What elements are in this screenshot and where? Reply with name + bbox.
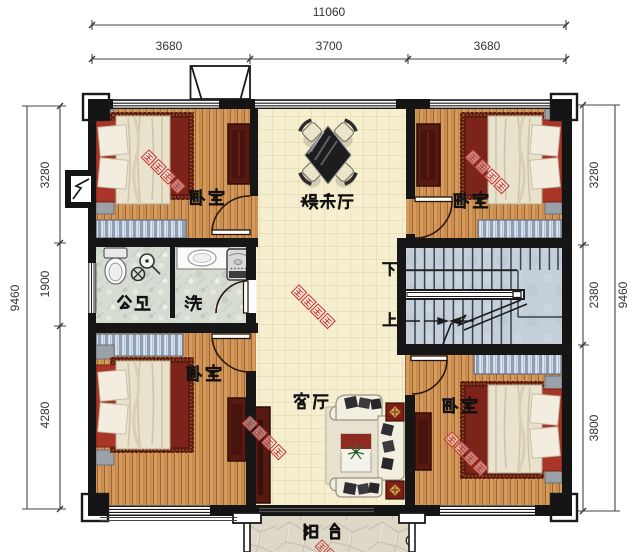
svg-text:4280: 4280	[38, 401, 52, 428]
svg-text:3700: 3700	[316, 39, 343, 53]
svg-text:3800: 3800	[587, 414, 601, 441]
svg-text:3280: 3280	[38, 161, 52, 188]
svg-text:3280: 3280	[587, 161, 601, 188]
svg-text:9460: 9460	[8, 284, 22, 311]
svg-text:11060: 11060	[313, 5, 346, 19]
svg-text:1900: 1900	[38, 270, 52, 297]
svg-text:3680: 3680	[156, 39, 183, 53]
svg-text:9460: 9460	[616, 281, 630, 308]
svg-text:3680: 3680	[474, 39, 501, 53]
svg-text:2380: 2380	[587, 281, 601, 308]
